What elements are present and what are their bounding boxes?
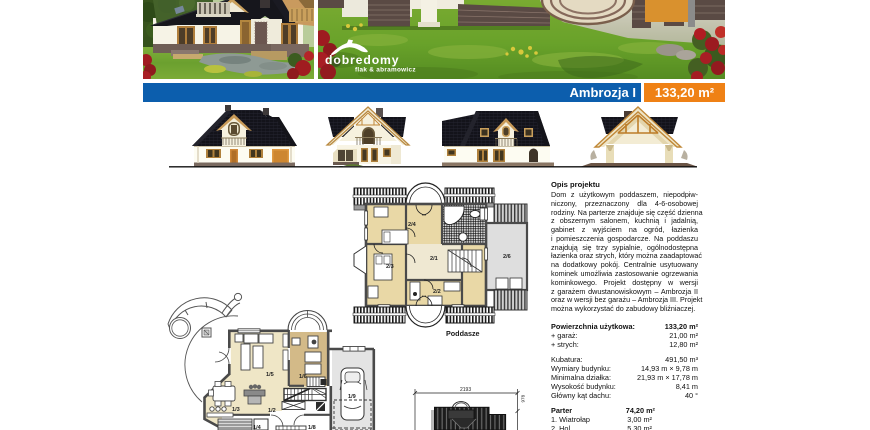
svg-text:dobredomy: dobredomy [325, 53, 399, 67]
svg-text:2/1: 2/1 [430, 256, 438, 262]
svg-text:2/3: 2/3 [386, 264, 394, 270]
svg-text:2/6: 2/6 [503, 254, 511, 260]
svg-text:2/2: 2/2 [433, 289, 441, 295]
svg-text:1/2: 1/2 [268, 408, 276, 414]
svg-text:978: 978 [521, 394, 526, 402]
svg-text:1/4: 1/4 [253, 425, 262, 430]
svg-text:1/9: 1/9 [348, 394, 356, 400]
svg-text:2/4: 2/4 [408, 222, 417, 228]
svg-text:1/6: 1/6 [299, 374, 307, 380]
svg-text:flak & abramowicz: flak & abramowicz [355, 67, 416, 74]
svg-text:1/3: 1/3 [232, 407, 240, 413]
svg-text:1/8: 1/8 [308, 425, 316, 430]
svg-text:1/5: 1/5 [266, 372, 274, 378]
svg-text:2193: 2193 [460, 387, 471, 393]
